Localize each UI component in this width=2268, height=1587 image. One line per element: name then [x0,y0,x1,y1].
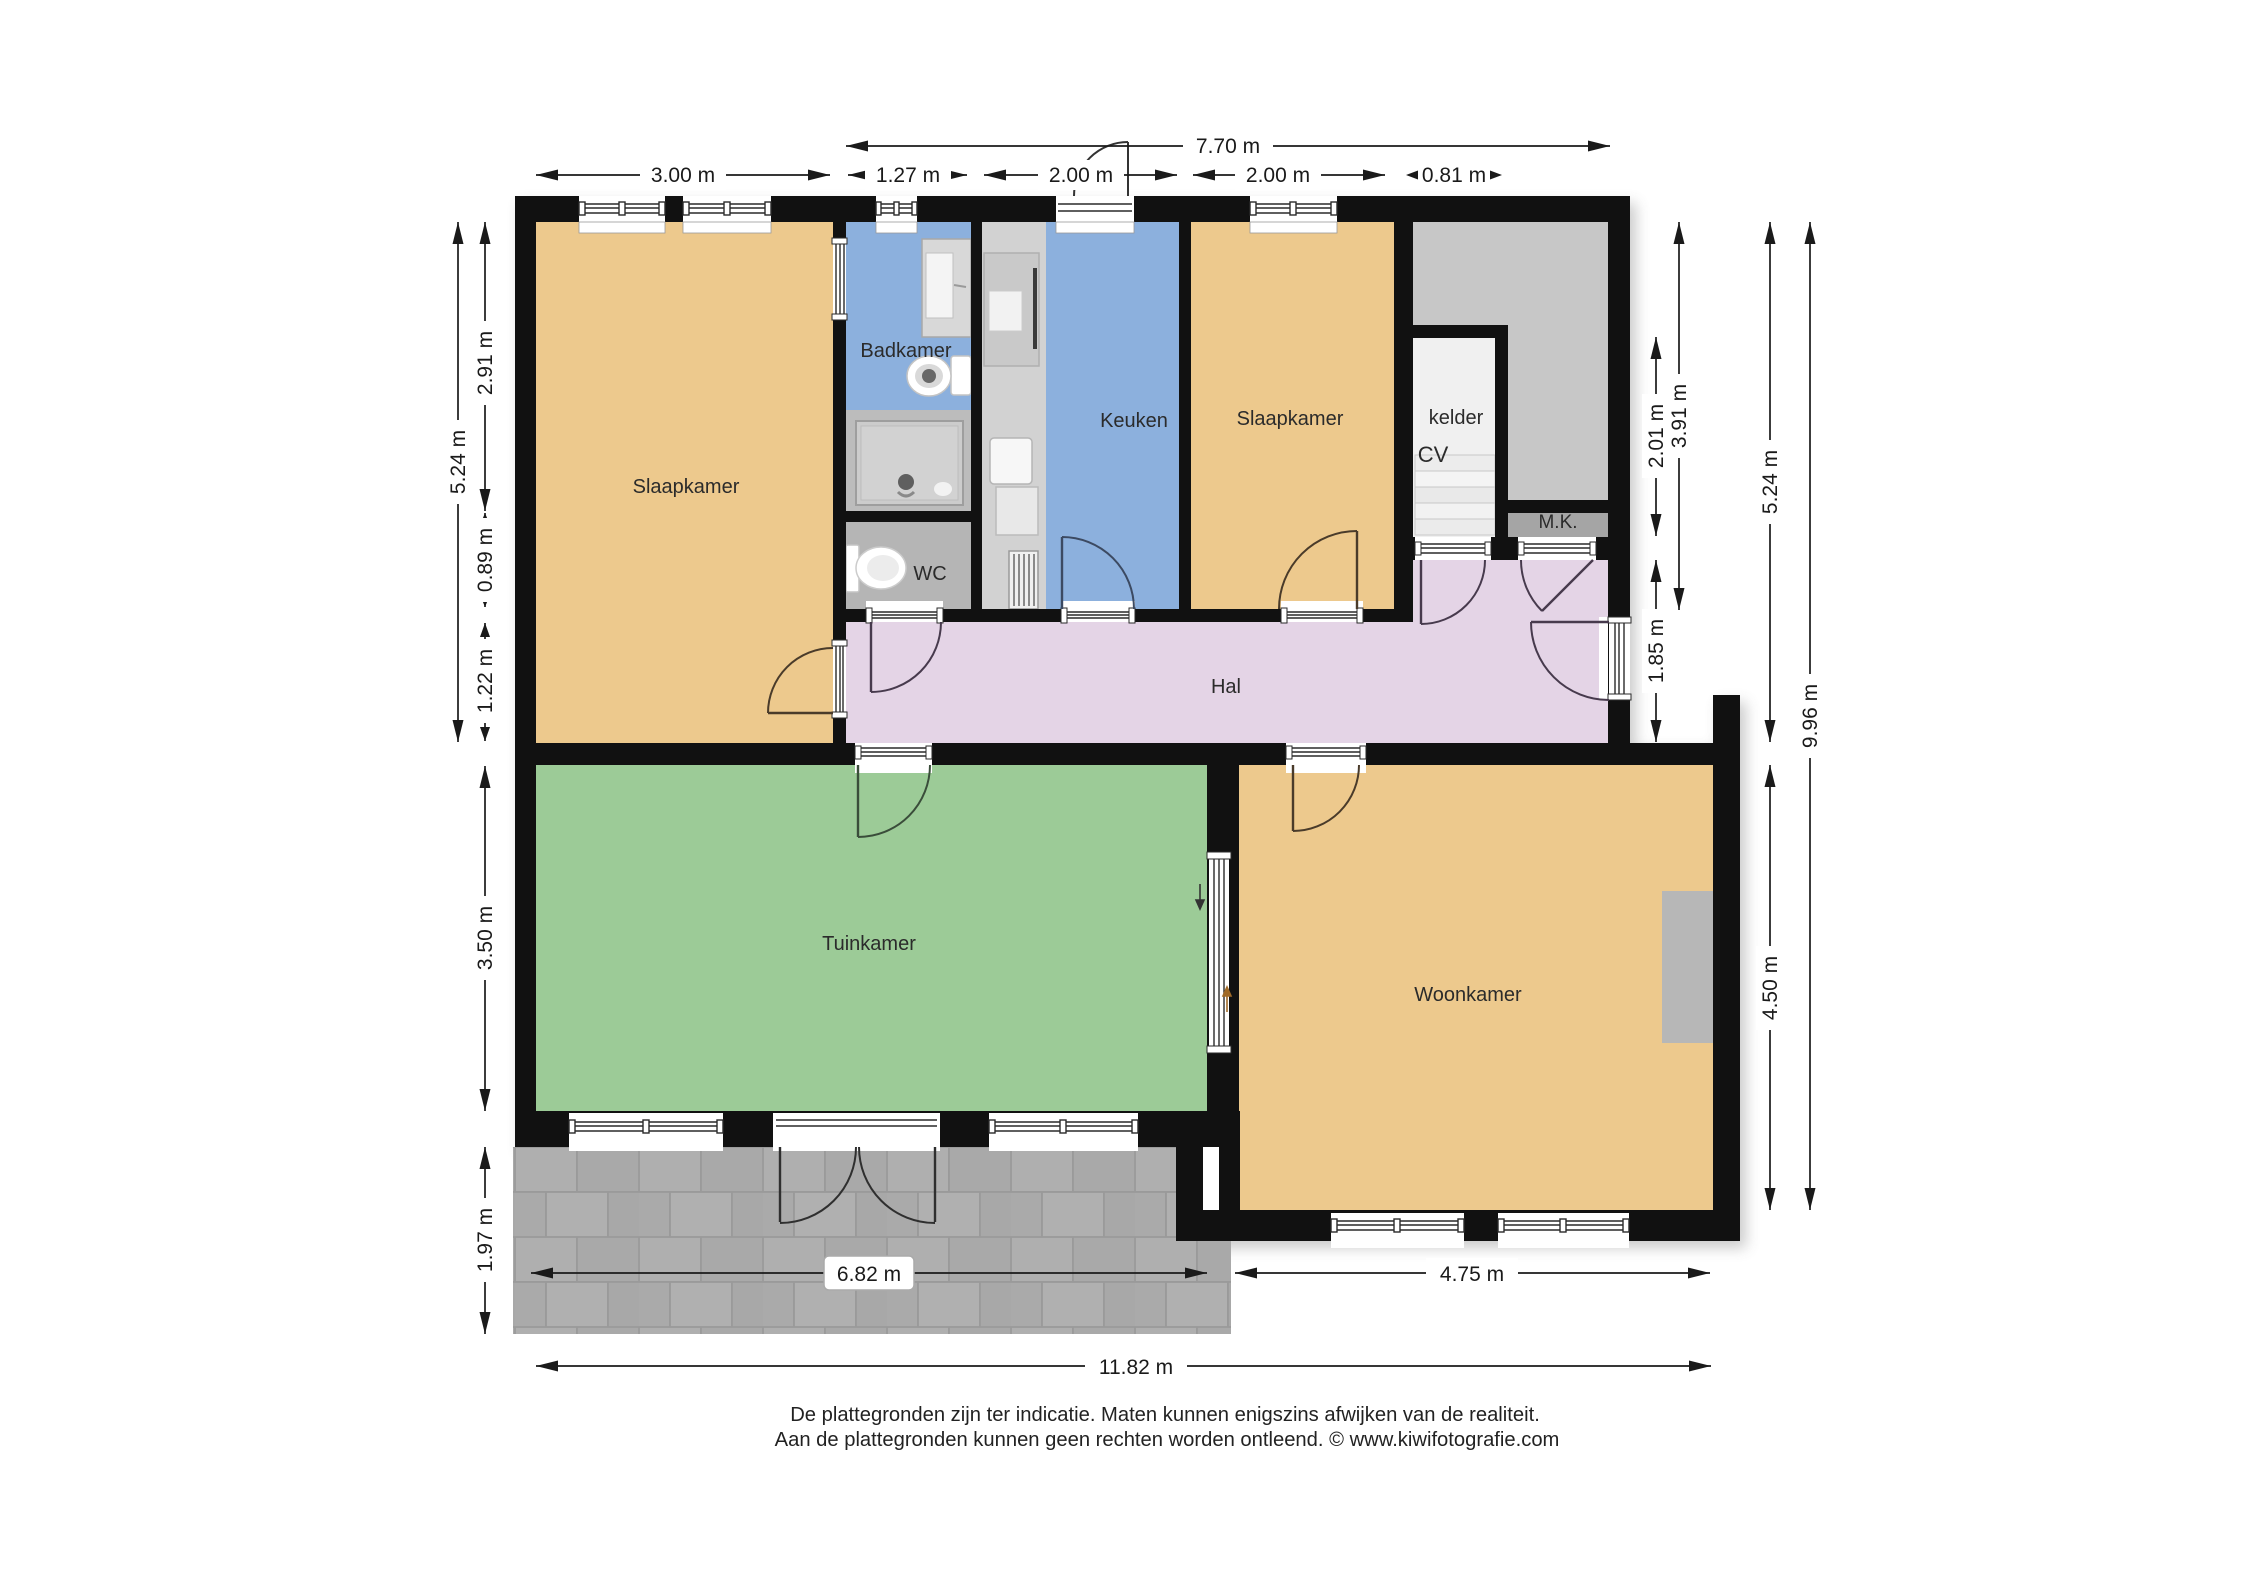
svg-text:Hal: Hal [1211,676,1241,698]
svg-text:2.01 m: 2.01 m [1645,404,1668,468]
svg-text:1.97 m: 1.97 m [474,1208,497,1272]
svg-text:3.00 m: 3.00 m [651,164,715,187]
svg-text:3.91 m: 3.91 m [1668,384,1691,448]
svg-text:kelder: kelder [1429,407,1484,429]
svg-text:11.82 m: 11.82 m [1099,1356,1173,1379]
svg-text:6.82 m: 6.82 m [837,1263,901,1286]
svg-text:4.75 m: 4.75 m [1440,1263,1504,1286]
svg-text:CV: CV [1418,442,1449,467]
svg-text:1.85 m: 1.85 m [1645,619,1668,683]
svg-text:Slaapkamer: Slaapkamer [1237,408,1344,430]
svg-text:9.96 m: 9.96 m [1799,684,1822,748]
svg-text:7.70 m: 7.70 m [1196,135,1260,158]
svg-text:De plattegronden zijn ter indi: De plattegronden zijn ter indicatie. Mat… [790,1404,1540,1426]
svg-text:2.91 m: 2.91 m [474,331,497,395]
svg-text:0.89 m: 0.89 m [474,528,497,592]
svg-text:5.24 m: 5.24 m [1759,450,1782,514]
svg-text:Woonkamer: Woonkamer [1414,984,1522,1006]
svg-text:2.00 m: 2.00 m [1246,164,1310,187]
svg-text:1.22 m: 1.22 m [474,649,497,713]
svg-text:2.00 m: 2.00 m [1049,164,1113,187]
svg-text:1.27 m: 1.27 m [876,164,940,187]
svg-text:Aan de plattegronden kunnen ge: Aan de plattegronden kunnen geen rechten… [775,1429,1560,1451]
svg-text:Slaapkamer: Slaapkamer [633,476,740,498]
svg-text:0.81 m: 0.81 m [1422,164,1486,187]
svg-text:WC: WC [913,563,946,585]
svg-text:M.K.: M.K. [1538,512,1577,533]
svg-text:Keuken: Keuken [1100,410,1168,432]
svg-text:Badkamer: Badkamer [860,340,951,362]
svg-text:4.50 m: 4.50 m [1759,956,1782,1020]
svg-text:Tuinkamer: Tuinkamer [822,933,916,955]
svg-text:5.24 m: 5.24 m [447,430,470,494]
svg-text:3.50 m: 3.50 m [474,906,497,970]
